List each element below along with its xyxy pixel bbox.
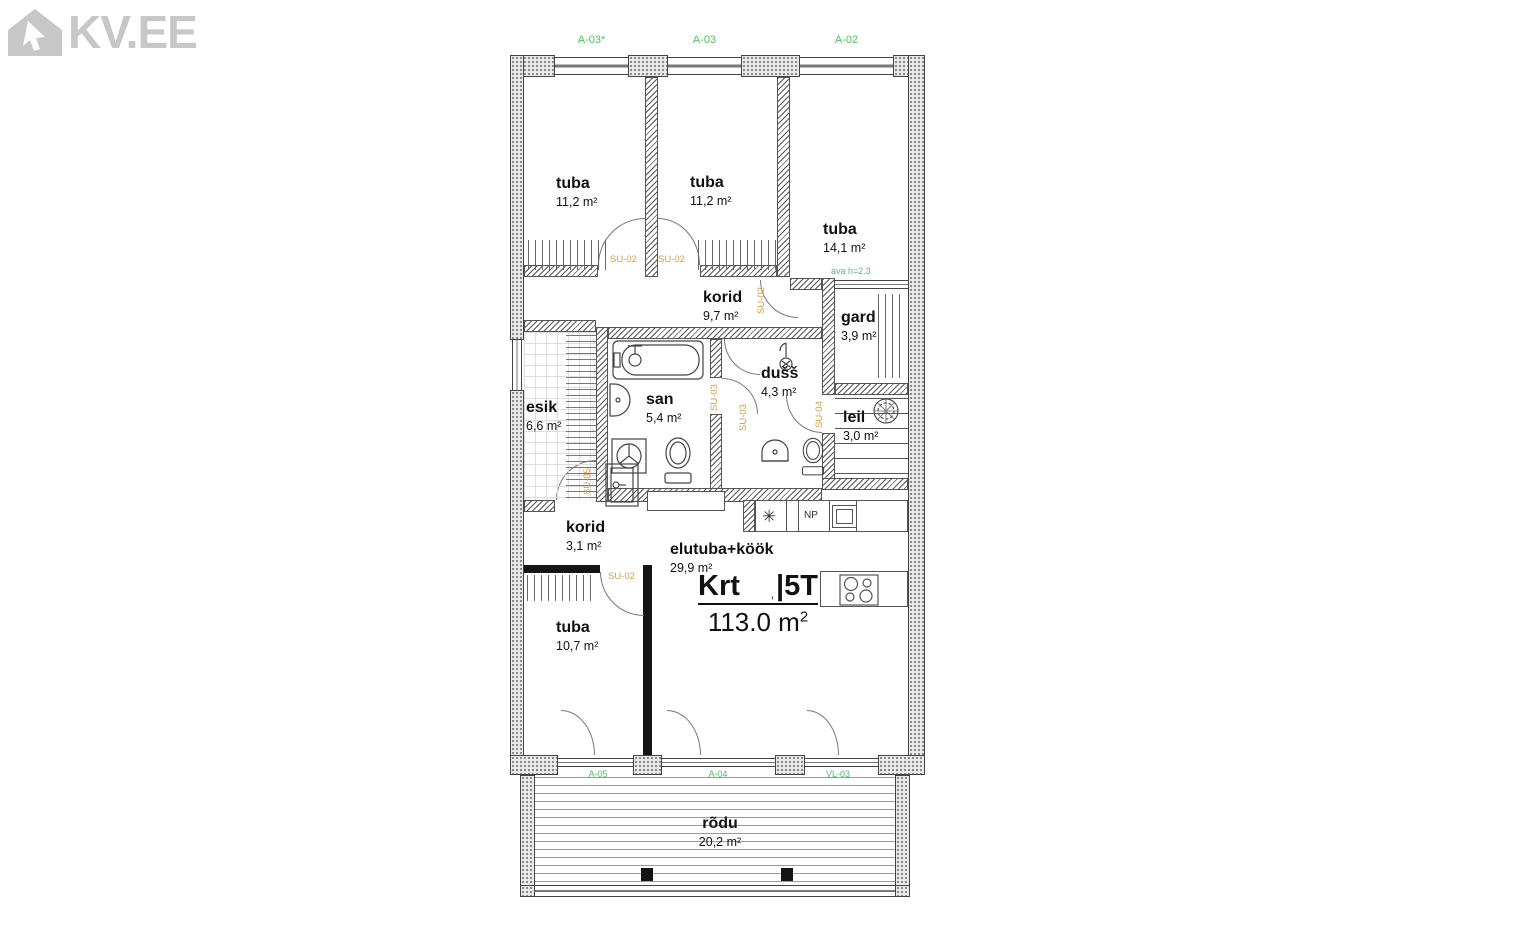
wardrobe-comb bbox=[527, 575, 595, 601]
radiator-comb bbox=[698, 240, 776, 270]
balcony-wall bbox=[895, 885, 910, 897]
room-label: korid 3,1 m² bbox=[566, 518, 605, 554]
interior-wall bbox=[710, 339, 722, 378]
radiator-comb bbox=[528, 240, 610, 270]
door-code-label: SU-02 bbox=[755, 281, 768, 319]
interior-wall bbox=[524, 500, 555, 512]
exterior-wall bbox=[633, 755, 662, 775]
balcony-door-sill bbox=[805, 758, 878, 767]
door-code-label: SU-04 bbox=[813, 393, 826, 435]
balcony-door-label: A-04 bbox=[688, 769, 748, 779]
balcony-wall bbox=[520, 885, 535, 897]
room-label: leil 3,0 m² bbox=[843, 408, 878, 444]
logo-text: KV.EE bbox=[68, 9, 197, 55]
exterior-wall bbox=[741, 55, 800, 77]
balcony-door-label: A-05 bbox=[568, 769, 628, 779]
kv-logo: KV.EE bbox=[8, 8, 197, 56]
room-label: tuba 10,7 m² bbox=[556, 618, 598, 654]
exterior-wall bbox=[878, 755, 925, 775]
room-label: tuba 14,1 m² bbox=[823, 220, 865, 256]
cabinet-icon bbox=[605, 463, 639, 507]
door-code-label: SU-02 bbox=[608, 571, 635, 582]
entrance-door-opening bbox=[512, 340, 522, 390]
np-label: NP bbox=[804, 510, 818, 521]
partition-wall bbox=[524, 565, 600, 573]
exterior-wall bbox=[510, 755, 558, 775]
opening-height-label: ava h=2.3 bbox=[831, 266, 893, 276]
interior-wall bbox=[608, 327, 822, 339]
window-type-label: A-03* bbox=[555, 34, 628, 46]
exterior-wall bbox=[908, 55, 925, 775]
wall-niche bbox=[647, 491, 725, 511]
unit-mark: , bbox=[771, 589, 774, 601]
unit-title: Krt , |5T 113.0 m2 bbox=[698, 572, 818, 638]
balcony-wall bbox=[895, 775, 910, 897]
floor-plan: ✳ NP A-03* A-03 A-02 ava h=2.3 bbox=[510, 48, 925, 897]
toilet-icon bbox=[800, 435, 826, 479]
balcony-door-arc bbox=[667, 710, 701, 755]
door-code-label: SU-03 bbox=[708, 376, 721, 418]
door-code-label: SU-02 bbox=[610, 254, 637, 265]
window bbox=[800, 57, 893, 75]
door-code-label: SU-05 bbox=[581, 460, 594, 502]
stove-counter bbox=[820, 571, 908, 607]
balcony-door-label: VL-03 bbox=[808, 769, 868, 779]
door-arc bbox=[724, 339, 760, 375]
page: KV.EE bbox=[0, 0, 1515, 930]
post bbox=[781, 868, 793, 881]
room-label: rõdu 20,2 m² bbox=[685, 814, 755, 850]
balcony-railing bbox=[520, 885, 910, 897]
kitchen-sink-icon bbox=[832, 505, 857, 528]
balcony-wall bbox=[520, 775, 535, 897]
interior-wall bbox=[524, 320, 596, 332]
stove-icon bbox=[839, 574, 879, 606]
sink-icon bbox=[760, 437, 790, 463]
window bbox=[668, 57, 741, 75]
exterior-wall bbox=[510, 55, 524, 340]
toilet-icon bbox=[662, 436, 694, 486]
interior-wall bbox=[822, 278, 835, 395]
post bbox=[641, 868, 653, 881]
room-label: san 5,4 m² bbox=[646, 390, 681, 426]
counter-divider bbox=[786, 501, 787, 531]
room-label: esik 6,6 m² bbox=[526, 398, 561, 434]
exterior-wall bbox=[628, 55, 668, 77]
bathtub-icon bbox=[612, 340, 704, 380]
counter-divider bbox=[829, 501, 830, 531]
balcony-door-arc bbox=[561, 710, 595, 755]
interior-wall bbox=[777, 77, 790, 277]
balcony-door-arc bbox=[807, 710, 839, 755]
unit-area: 113.0 m2 bbox=[698, 607, 818, 638]
interior-wall bbox=[743, 500, 755, 532]
interior-wall bbox=[835, 383, 908, 395]
balcony-door-sill bbox=[558, 758, 633, 767]
sink-icon bbox=[608, 382, 632, 418]
window bbox=[555, 57, 628, 75]
door-code-label: SU-03 bbox=[737, 396, 750, 438]
room-label: tuba 11,2 m² bbox=[690, 173, 731, 209]
room-label: gard 3,9 m² bbox=[841, 308, 876, 344]
kitchen-counter: ✳ NP bbox=[755, 500, 908, 532]
window-type-label: A-02 bbox=[800, 34, 893, 46]
counter-divider bbox=[798, 501, 799, 531]
exterior-wall bbox=[510, 390, 524, 775]
room-label: dušš 4,3 m² bbox=[761, 364, 798, 400]
symbol-asterisk: ✳ bbox=[762, 507, 776, 527]
interior-wall bbox=[645, 77, 658, 277]
kv-logo-house-icon bbox=[8, 8, 62, 56]
room-label: tuba 11,2 m² bbox=[556, 174, 597, 210]
room-label: korid 9,7 m² bbox=[703, 288, 742, 324]
balcony-door-sill bbox=[662, 758, 775, 767]
unit-type: |5T bbox=[776, 572, 818, 601]
window-type-label: A-03 bbox=[668, 34, 741, 46]
door-code-label: SU-02 bbox=[658, 254, 685, 265]
partition-wall bbox=[643, 565, 652, 755]
interior-wall bbox=[822, 478, 908, 490]
interior-wall bbox=[710, 414, 722, 490]
wardrobe-comb bbox=[878, 294, 905, 378]
unit-name: Krt bbox=[698, 572, 740, 601]
unit-title-row: Krt , |5T bbox=[698, 572, 818, 605]
wall-opening bbox=[835, 280, 908, 289]
exterior-wall bbox=[775, 755, 805, 775]
